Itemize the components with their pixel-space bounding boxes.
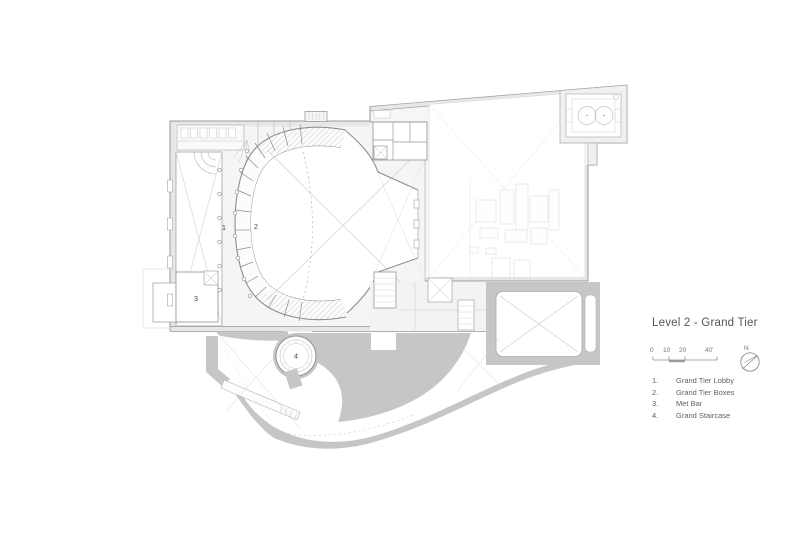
north-label: N xyxy=(744,345,749,352)
legend-label: Grand Tier Boxes xyxy=(676,387,734,399)
room-number-3: 3 xyxy=(194,294,198,303)
page-title: Level 2 - Grand Tier xyxy=(652,317,758,329)
room-number-1: 1 xyxy=(222,223,226,232)
legend-label: Grand Tier Lobby xyxy=(676,375,734,387)
upper-rooms xyxy=(373,122,427,160)
north-arrow: N xyxy=(735,342,765,376)
scale-label-40: 40' xyxy=(705,347,713,354)
legend-item-boxes: 2. Grand Tier Boxes xyxy=(652,387,782,399)
room-number-4: 4 xyxy=(294,352,298,361)
legend-num: 4. xyxy=(652,410,676,422)
legend-num: 1. xyxy=(652,375,676,387)
scale-label-0: 0 xyxy=(650,347,654,354)
room-number-2: 2 xyxy=(254,222,258,231)
page: 1 2 3 4 Level 2 - Grand Tier 0 10 20 40'… xyxy=(0,0,800,533)
scale-label-10: 10 xyxy=(663,347,670,354)
legend: 1. Grand Tier Lobby 2. Grand Tier Boxes … xyxy=(652,375,782,421)
void-room xyxy=(486,282,600,365)
floor-plan: 1 2 3 4 xyxy=(0,0,800,533)
scale-bar xyxy=(652,355,722,365)
legend-num: 2. xyxy=(652,387,676,399)
legend-label: Met Bar xyxy=(676,398,702,410)
legend-label: Grand Staircase xyxy=(676,410,730,422)
legend-item-met-bar: 3. Met Bar xyxy=(652,398,782,410)
legend-item-lobby: 1. Grand Tier Lobby xyxy=(652,375,782,387)
legend-item-staircase: 4. Grand Staircase xyxy=(652,410,782,422)
grand-staircase xyxy=(273,333,319,389)
scale-label-20: 20 xyxy=(679,347,686,354)
legend-num: 3. xyxy=(652,398,676,410)
